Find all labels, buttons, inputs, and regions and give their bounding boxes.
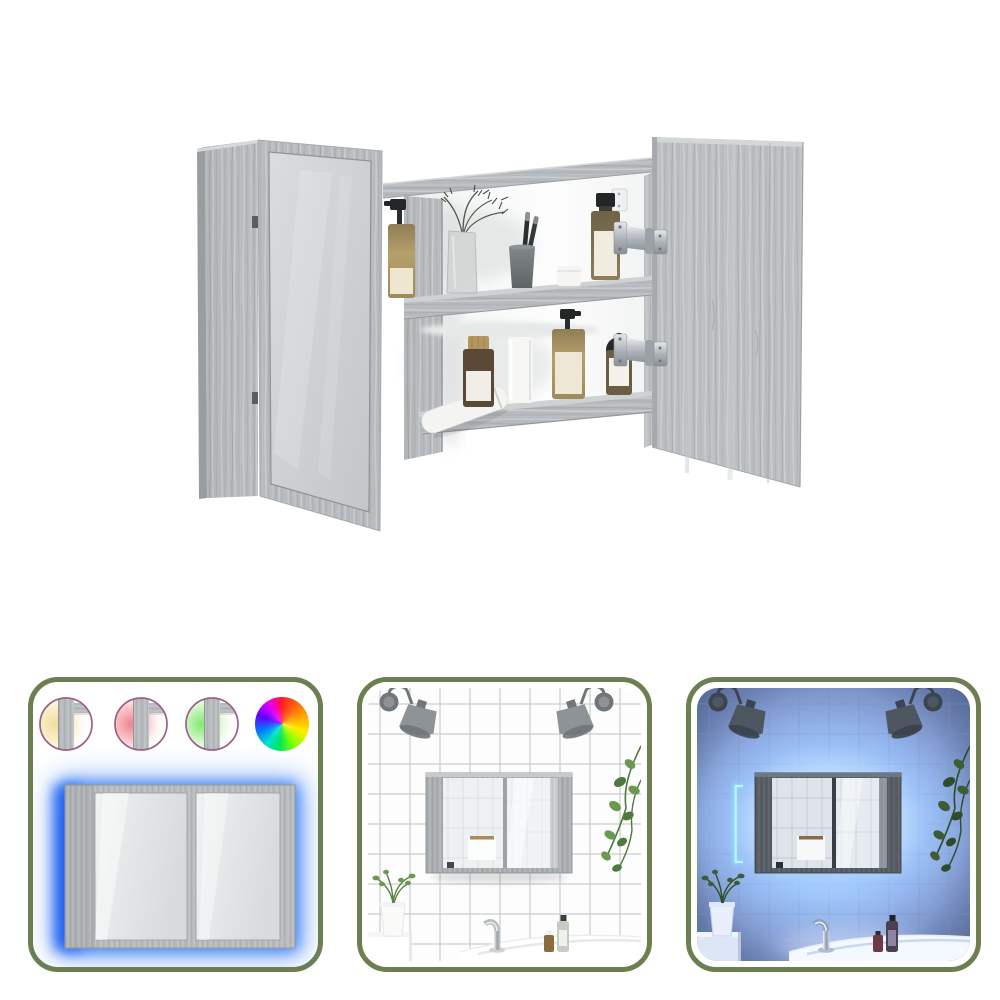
swatch-red-led bbox=[115, 698, 168, 750]
left-door-mirror bbox=[197, 140, 382, 531]
cabinet-front bbox=[65, 785, 295, 948]
white-cylinder-bottle bbox=[508, 337, 533, 403]
cabinet-front-blue-glow bbox=[53, 778, 305, 958]
swatch-green-led bbox=[186, 698, 239, 750]
panel-bathroom-led-night bbox=[686, 677, 981, 972]
main-product-photo bbox=[0, 0, 1000, 676]
rgb-color-wheel-icon bbox=[255, 697, 309, 751]
panel-led-color-options bbox=[28, 677, 323, 972]
product-image-canvas bbox=[0, 0, 1000, 1000]
bathroom-daylight-photo bbox=[368, 688, 641, 961]
mirror-cabinet bbox=[755, 773, 901, 886]
panel-bathroom-daylight bbox=[357, 677, 652, 972]
cabinet-body bbox=[383, 158, 654, 460]
right-door bbox=[652, 137, 803, 487]
bathroom-led-night-photo bbox=[697, 688, 970, 961]
swatch-warm-white-led bbox=[40, 698, 93, 750]
mirror-cabinet bbox=[426, 773, 572, 883]
white-cream-jar bbox=[557, 266, 581, 286]
